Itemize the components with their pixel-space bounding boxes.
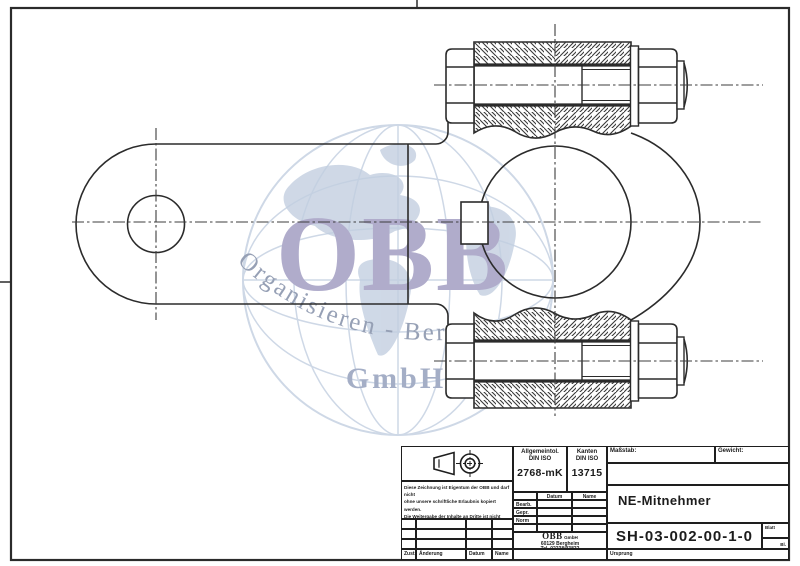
sig-cell — [537, 508, 572, 516]
origin-cell: Ursprung — [607, 549, 789, 560]
edges-standard: DIN ISO — [568, 456, 606, 463]
top-bolt-assembly — [446, 42, 687, 138]
sig-cell — [572, 516, 607, 524]
edges-value: 13715 — [568, 467, 606, 479]
sheet-label: Blatt — [763, 524, 788, 530]
ring-outer-ear — [631, 133, 700, 320]
hatch-area — [474, 105, 555, 138]
sig-cell — [572, 508, 607, 516]
sig-cell — [513, 524, 537, 532]
revision-cell — [466, 539, 492, 549]
sig-row-norm: Norm — [513, 516, 537, 524]
hex-bolt-head — [446, 49, 474, 123]
revision-cell — [492, 539, 513, 549]
hatch-area — [555, 42, 631, 65]
edges-tolerance-cell: Kanten DIN ISO 13715 — [567, 446, 607, 492]
sheet-total-cell: Bl. — [762, 538, 789, 549]
rev-zust-header: Zust. — [401, 549, 416, 560]
drawing-sheet: OBB Organisieren - Beraten - Besorgen Gm… — [0, 0, 800, 566]
revision-cell — [492, 519, 513, 529]
revision-cell — [416, 519, 466, 529]
sig-name-header: Name — [572, 492, 607, 500]
hatch-area — [554, 311, 631, 341]
revision-cell — [416, 529, 466, 539]
company-cell: OBB GmbH 60129 Bergheim Tel. 02238/93832 — [513, 532, 607, 549]
sig-date-header: Datum — [537, 492, 572, 500]
general-tolerance-cell: Allgemeintol. DIN ISO 2768-mK — [513, 446, 567, 492]
revision-cell — [416, 539, 466, 549]
tolerance-standard: DIN ISO — [514, 456, 566, 463]
weight-cell: Gewicht: — [715, 446, 789, 463]
bottom-bolt-assembly — [446, 308, 687, 408]
sig-row-bearb: Bearb. — [513, 500, 537, 508]
title-block: Diese Zeichnung ist Eigentum der OBB und… — [401, 446, 789, 560]
watermark-gmbh-text: GmbH — [346, 362, 446, 395]
hatch-area — [474, 42, 555, 65]
sig-cell — [572, 524, 607, 532]
rev-name-header: Name — [492, 549, 513, 560]
sig-cell — [537, 500, 572, 508]
company-suffix: GmbH — [564, 535, 578, 540]
sig-cell — [537, 524, 572, 532]
sheet-cell: Blatt — [762, 523, 789, 538]
sig-cell — [572, 500, 607, 508]
revision-cell — [466, 519, 492, 529]
drawing-number-cell: SH-03-002-00-1-0 — [607, 523, 762, 549]
revision-cell — [401, 539, 416, 549]
revision-cell — [492, 529, 513, 539]
tolerance-label: Allgemeintol. — [514, 449, 566, 456]
sheet-total-label: Bl. — [763, 539, 788, 547]
tolerance-value: 2768-mK — [514, 467, 566, 479]
part-name-cell: NE-Mitnehmer — [607, 485, 789, 523]
key-block — [461, 202, 488, 244]
projection-symbol-cell — [401, 446, 513, 481]
revision-cell — [401, 519, 416, 529]
washer — [631, 46, 639, 126]
rev-aenderung-header: Änderung — [416, 549, 466, 560]
sig-cell — [537, 516, 572, 524]
sig-header-empty — [513, 492, 537, 500]
rev-datum-header: Datum — [466, 549, 492, 560]
company-name: OBB — [542, 532, 563, 541]
revision-cell — [466, 529, 492, 539]
hex-nut — [639, 49, 678, 123]
first-angle-projection-icon — [402, 447, 512, 480]
pin-hole — [128, 196, 185, 253]
revision-cell — [401, 529, 416, 539]
disclaimer-text: Diese Zeichnung ist Eigentum der OBB und… — [401, 481, 513, 519]
scale-cell: Maßstab: — [607, 446, 715, 463]
hatch-area — [555, 381, 631, 408]
sig-row-gepr: Gepr. — [513, 508, 537, 516]
hatch-area — [555, 105, 631, 135]
hatch-area — [474, 381, 555, 408]
edges-label: Kanten — [568, 449, 606, 456]
rev-empty-cell — [513, 549, 607, 560]
scale-value-cell — [607, 463, 789, 485]
